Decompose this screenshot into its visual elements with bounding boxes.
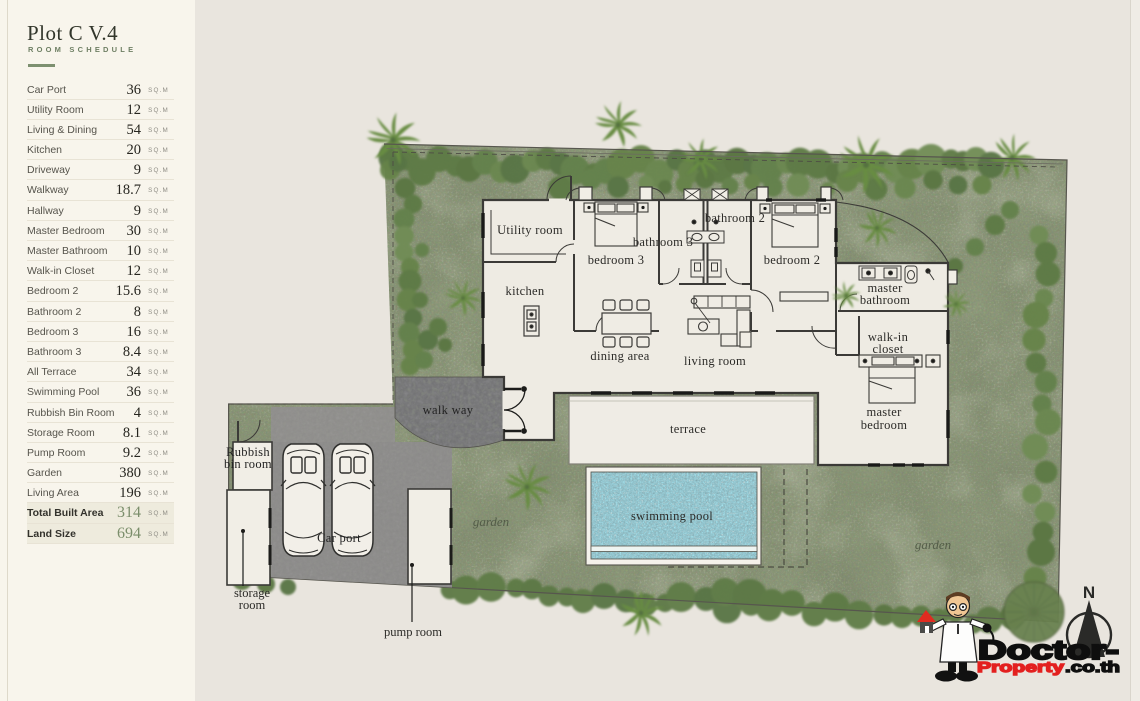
svg-text:dining area: dining area [590,349,649,363]
svg-text:bathroom 3: bathroom 3 [633,235,693,249]
svg-text:bedroom: bedroom [861,418,908,432]
svg-text:walk way: walk way [423,403,474,417]
svg-text:Car port: Car port [317,531,361,545]
svg-text:Property: Property [977,659,1065,676]
svg-text:bedroom 3: bedroom 3 [588,253,645,267]
svg-text:master: master [866,405,902,419]
svg-text:living room: living room [684,354,746,368]
svg-text:kitchen: kitchen [506,284,545,298]
svg-text:garden: garden [473,514,509,529]
svg-text:Utility room: Utility room [497,223,563,237]
svg-text:closet: closet [873,342,904,356]
svg-text:bathroom: bathroom [860,293,910,307]
svg-text:terrace: terrace [670,422,706,436]
svg-text:pump room: pump room [384,625,442,639]
svg-text:room: room [239,598,266,612]
svg-text:bedroom 2: bedroom 2 [764,253,821,267]
svg-text:.co.th: .co.th [1065,659,1120,676]
svg-text:swimming pool: swimming pool [631,509,713,523]
svg-text:bin room: bin room [224,457,272,471]
svg-text:N: N [1083,583,1095,602]
svg-text:garden: garden [915,537,951,552]
svg-text:bathroom 2: bathroom 2 [705,211,765,225]
